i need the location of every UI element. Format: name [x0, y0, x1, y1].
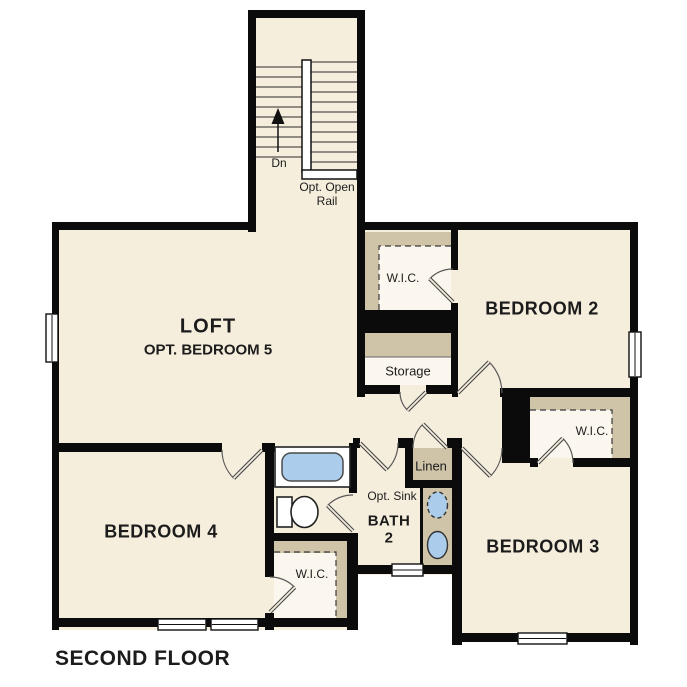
window-bedroom2-right [629, 332, 641, 377]
window-bedroom3 [518, 633, 567, 644]
stair-rail-horizontal [302, 170, 357, 179]
room-label-loft-option: OPT. BEDROOM 5 [144, 342, 272, 359]
wic-bedroom4-floor [274, 553, 336, 618]
window-bedroom4-right [211, 619, 258, 630]
toilet [277, 497, 318, 528]
label-wic-bedroom4: W.I.C. [296, 567, 329, 581]
label-opt-sink: Opt. Sink [367, 489, 416, 503]
room-label-loft: LOFT [180, 316, 236, 339]
label-wic-bedroom2: W.I.C. [387, 271, 420, 285]
room-label-bath-line1: BATH [368, 513, 411, 530]
window-bath [392, 564, 423, 576]
rail-note-line2: Rail [317, 194, 338, 208]
stairs-down-label: Dn [271, 156, 286, 170]
sink [428, 532, 448, 559]
exterior-notch [358, 575, 452, 632]
floor-plan-drawing [0, 0, 687, 687]
vanity-edge-wall [420, 486, 423, 566]
room-label-bedroom2: BEDROOM 2 [485, 299, 599, 320]
room-label-bedroom4: BEDROOM 4 [104, 522, 218, 543]
label-storage: Storage [385, 364, 431, 379]
storage-shelf [365, 333, 451, 357]
window-bedroom4-left [158, 619, 206, 630]
label-wic-bedroom3: W.I.C. [576, 424, 609, 438]
room-label-bedroom3: BEDROOM 3 [486, 537, 600, 558]
optional-sink [428, 492, 448, 518]
room-label-bath-line2: 2 [385, 530, 394, 547]
floor-plan-canvas: Dn Opt. Open Rail LOFT OPT. BEDROOM 5 W.… [0, 0, 687, 687]
window-loft-left [46, 314, 58, 362]
label-linen: Linen [415, 459, 447, 474]
rail-note-line1: Opt. Open [299, 180, 354, 194]
stair-rail-vertical [302, 60, 311, 172]
plan-title: SECOND FLOOR [55, 647, 230, 671]
bathtub [275, 447, 350, 487]
